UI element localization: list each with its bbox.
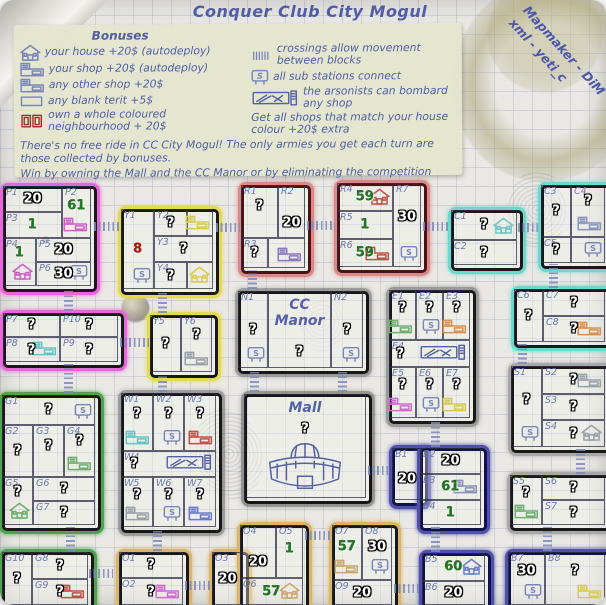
territory-B1[interactable]: B120 bbox=[392, 448, 422, 500]
territory-CC-Manor[interactable]: CC Manor? bbox=[268, 291, 331, 368]
shop-icon bbox=[577, 321, 602, 340]
crossing-icon bbox=[518, 223, 540, 232]
territory-P6[interactable]: P630S bbox=[36, 262, 91, 286]
army-count: ? bbox=[343, 322, 351, 337]
house-icon bbox=[279, 582, 300, 603]
territory-label: P8 bbox=[6, 338, 18, 349]
crossing-icon bbox=[431, 421, 440, 447]
territory-O4[interactable]: O420 bbox=[240, 525, 276, 578]
territory-label: W2 bbox=[156, 394, 171, 405]
territory-label: C6 bbox=[517, 290, 530, 301]
territory-label: C1 bbox=[454, 211, 467, 222]
army-count: ? bbox=[570, 426, 578, 441]
army-count: 59 bbox=[356, 246, 374, 261]
arsonists-icon bbox=[419, 344, 467, 364]
territory-P9[interactable]: P9? bbox=[60, 337, 118, 362]
legend-columns: your house +20$ (autodeploy)your shop +2… bbox=[20, 41, 456, 139]
map-frame: Conquer Club City Mogul Mapmaker - DiM x… bbox=[0, 0, 606, 605]
army-count: ? bbox=[133, 487, 141, 502]
substation-icon: S bbox=[251, 69, 269, 85]
army-count: ? bbox=[256, 199, 264, 214]
territory-O5[interactable]: O51 bbox=[276, 525, 303, 578]
svg-text:S: S bbox=[406, 247, 412, 257]
arsonists-icon bbox=[251, 90, 299, 106]
territory-E1[interactable]: E1? bbox=[389, 290, 416, 340]
army-count: ? bbox=[76, 434, 84, 449]
territory-W2[interactable]: W2?S bbox=[153, 393, 184, 451]
legend-text: your shop +20$ (autodeploy) bbox=[49, 62, 208, 75]
territory-label: B7 bbox=[511, 553, 524, 564]
territory-icons: S bbox=[371, 558, 389, 578]
arsonists-icon bbox=[165, 454, 213, 474]
house-icon bbox=[493, 217, 514, 238]
army-count: ? bbox=[45, 439, 53, 454]
territory-icons bbox=[279, 582, 300, 603]
svg-text:S: S bbox=[527, 427, 533, 437]
territory-R2[interactable]: R220 bbox=[278, 185, 305, 238]
shop-icon bbox=[442, 397, 467, 416]
territory-B3[interactable]: B361 bbox=[420, 474, 481, 500]
shop-icon bbox=[577, 584, 602, 603]
legend-item: any blank terit +5$ bbox=[20, 93, 251, 108]
territory-S7[interactable]: S7? bbox=[542, 500, 605, 525]
substation-icon: S bbox=[524, 583, 542, 603]
legend-text: your house +20$ (autodeploy) bbox=[45, 45, 211, 58]
territory-label: R4 bbox=[340, 184, 353, 195]
territory-label: N2 bbox=[334, 292, 347, 303]
territory-icons bbox=[334, 559, 359, 578]
legend-item: own a whole coloured neighbourhood + 20$ bbox=[20, 108, 251, 134]
legend-text: the arsonists can bombard any shop bbox=[303, 85, 456, 111]
territory-icons: S bbox=[247, 346, 265, 366]
crossing-icon bbox=[250, 370, 259, 392]
crossing-icon bbox=[185, 581, 211, 590]
territory-label: R2 bbox=[281, 186, 294, 197]
territory-O2[interactable]: O2? bbox=[119, 578, 183, 605]
shop-icon bbox=[184, 351, 209, 370]
shop-icon bbox=[188, 506, 213, 525]
territory-icons bbox=[125, 506, 150, 525]
territory-C2[interactable]: C2? bbox=[451, 240, 517, 265]
crossing-icon bbox=[158, 292, 167, 313]
territory-label: W3 bbox=[187, 394, 202, 405]
legend-item: any other shop +20$ bbox=[20, 77, 251, 93]
territory-C8[interactable]: C8? bbox=[543, 316, 605, 342]
territory-icons bbox=[581, 424, 602, 445]
territory-W5[interactable]: W5? bbox=[121, 477, 153, 527]
legend-item: your house +20$ (autodeploy) bbox=[20, 43, 251, 61]
army-count: ? bbox=[28, 342, 36, 357]
territory-O7[interactable]: O757 bbox=[332, 525, 362, 580]
territory-icons bbox=[577, 584, 602, 603]
territory-icons bbox=[577, 321, 602, 340]
army-count: 61 bbox=[441, 480, 459, 495]
territory-P4[interactable]: P41 bbox=[3, 238, 36, 286]
territory-Y2[interactable]: Y2? bbox=[154, 209, 187, 236]
territory-label: O2 bbox=[122, 579, 136, 590]
army-count: 20 bbox=[441, 454, 459, 469]
legend-text: all sub stations connect bbox=[273, 70, 401, 83]
territory-O1[interactable]: O1? bbox=[119, 552, 183, 578]
crossing-icon bbox=[158, 374, 167, 392]
territory-label: C3 bbox=[544, 186, 557, 197]
territory-R1[interactable]: R1? bbox=[241, 185, 278, 238]
territory-S5[interactable]: S5? bbox=[510, 475, 542, 525]
territory-B6[interactable]: B620 bbox=[422, 581, 485, 605]
territory-B4[interactable]: B41 bbox=[420, 500, 481, 525]
army-count: ? bbox=[453, 300, 461, 315]
army-count: ? bbox=[480, 245, 488, 260]
territory-label: B5 bbox=[425, 554, 438, 565]
crossing-icon bbox=[368, 466, 391, 475]
territory-icons: S bbox=[74, 403, 92, 423]
territory-label: Y5 bbox=[153, 316, 165, 327]
territory-C5[interactable]: C5? bbox=[541, 237, 571, 263]
territory-E3[interactable]: E3? bbox=[443, 290, 470, 340]
army-count: ? bbox=[60, 482, 68, 497]
army-count: 57 bbox=[262, 584, 280, 599]
territory-B8[interactable]: B8? bbox=[545, 552, 605, 605]
territory-E4[interactable]: E4? bbox=[389, 340, 470, 367]
army-count: 1 bbox=[28, 218, 37, 233]
territory-Y-house[interactable] bbox=[187, 262, 213, 289]
crossing-icon bbox=[153, 529, 162, 551]
crossing-icon bbox=[576, 449, 585, 474]
army-count: ? bbox=[196, 487, 204, 502]
territory-label: O9 bbox=[335, 581, 349, 592]
territory-icons bbox=[493, 217, 514, 238]
crossing-icon bbox=[338, 370, 347, 392]
territory-N1[interactable]: N1?S bbox=[238, 291, 268, 368]
territory-label: O6 bbox=[243, 579, 257, 590]
territory-label: P9 bbox=[63, 338, 75, 349]
substation-icon: S bbox=[133, 267, 151, 287]
svg-text:S: S bbox=[139, 269, 145, 279]
shop-icon bbox=[20, 78, 45, 93]
territory-label: P6 bbox=[39, 263, 51, 274]
territory-G4[interactable]: G4? bbox=[64, 425, 95, 477]
army-count: 20 bbox=[444, 586, 462, 601]
legend-text: any blank terit +5$ bbox=[48, 94, 153, 107]
crossing-icon bbox=[216, 223, 240, 232]
svg-text:S: S bbox=[253, 348, 259, 358]
svg-text:S: S bbox=[80, 405, 86, 415]
army-count: ? bbox=[570, 505, 578, 520]
territory-B5[interactable]: B560 bbox=[422, 553, 485, 581]
territory-P8[interactable]: P8? bbox=[3, 337, 60, 362]
territory-E5[interactable]: E5? bbox=[389, 367, 416, 418]
territory-icons bbox=[125, 430, 150, 449]
territory-icons bbox=[12, 263, 33, 284]
territory-icons bbox=[577, 373, 602, 392]
army-count: 20 bbox=[23, 192, 41, 207]
army-count: ? bbox=[570, 322, 578, 337]
shop-icon bbox=[155, 584, 180, 603]
territory-O9[interactable]: O920 bbox=[332, 580, 392, 605]
legend-text: own a whole coloured neighbourhood + 20$ bbox=[48, 108, 251, 134]
territory-C4[interactable]: C4? bbox=[571, 185, 605, 237]
house-icon bbox=[12, 263, 33, 284]
territory-P5[interactable]: P520 bbox=[36, 238, 91, 262]
crossing-icon bbox=[305, 531, 331, 540]
substation-icon: S bbox=[70, 264, 88, 284]
crossing-icon bbox=[518, 344, 527, 364]
army-count: ? bbox=[165, 487, 173, 502]
territory-Y-shop[interactable] bbox=[187, 209, 213, 236]
shop-icon bbox=[125, 506, 150, 525]
territory-icons: S bbox=[521, 425, 539, 445]
territory-label: C8 bbox=[546, 317, 559, 328]
shop-icon bbox=[188, 430, 213, 449]
territory-S1[interactable]: S1?S bbox=[511, 366, 542, 447]
territory-icons bbox=[184, 351, 209, 370]
legend-text: Get all shops that match your house colo… bbox=[251, 110, 456, 136]
legend-item: your shop +20$ (autodeploy) bbox=[20, 61, 251, 77]
territory-icons bbox=[388, 397, 413, 416]
territory-icons: S bbox=[524, 583, 542, 603]
army-count: 57 bbox=[338, 540, 356, 555]
territory-O3[interactable]: O320 bbox=[212, 552, 243, 605]
svg-text:S: S bbox=[169, 507, 175, 517]
rules-note-line2: Win by owning the Mall and the CC Manor … bbox=[20, 166, 456, 181]
army-count: ? bbox=[193, 328, 201, 343]
territory-W1[interactable]: W1? bbox=[121, 393, 153, 451]
territory-G2[interactable]: G2? bbox=[2, 425, 33, 477]
territory-G7[interactable]: G7? bbox=[33, 501, 95, 525]
territory-icons: S bbox=[422, 396, 440, 416]
army-count: 30 bbox=[54, 267, 72, 282]
army-count: ? bbox=[133, 406, 141, 421]
substation-icon: S bbox=[247, 346, 265, 366]
territory-label: O3 bbox=[215, 553, 229, 564]
territory-R5[interactable]: R51 bbox=[337, 211, 393, 239]
territory-N2[interactable]: N2?S bbox=[331, 291, 363, 368]
territory-label: B8 bbox=[548, 553, 561, 564]
territory-G8[interactable]: G8? bbox=[32, 552, 88, 579]
territory-E6[interactable]: E6?S bbox=[416, 367, 443, 418]
army-count: ? bbox=[196, 406, 204, 421]
territory-O6[interactable]: O657 bbox=[240, 578, 303, 605]
territory-C6[interactable]: C6? bbox=[514, 289, 543, 342]
army-count: ? bbox=[571, 563, 579, 578]
crossing-icon bbox=[64, 364, 73, 393]
svg-text:S: S bbox=[428, 320, 434, 330]
territory-label: G6 bbox=[36, 478, 49, 489]
territory-G1[interactable]: G1?S bbox=[2, 395, 95, 425]
territory-Mall[interactable]: Mall? bbox=[244, 394, 366, 498]
army-count: ? bbox=[180, 242, 188, 257]
army-count: 30 bbox=[398, 209, 416, 224]
territory-label: B3 bbox=[423, 475, 436, 486]
territory-G3[interactable]: G3? bbox=[33, 425, 64, 477]
legend-item: Get all shops that match your house colo… bbox=[251, 110, 456, 136]
territory-S4[interactable]: S4? bbox=[542, 420, 605, 447]
svg-text:S: S bbox=[348, 348, 354, 358]
territory-W4[interactable]: W4? bbox=[121, 451, 216, 477]
shop-icon bbox=[334, 559, 359, 578]
army-count: 60 bbox=[444, 560, 462, 575]
territory-E2[interactable]: E2?S bbox=[416, 290, 443, 340]
territory-P10[interactable]: P10? bbox=[60, 313, 118, 337]
territory-S2[interactable]: S2? bbox=[542, 366, 605, 394]
territory-C-sub[interactable]: S bbox=[571, 237, 605, 263]
territory-W3[interactable]: W3? bbox=[184, 393, 216, 451]
army-count: ? bbox=[552, 204, 560, 219]
territory-label: W1 bbox=[124, 394, 139, 405]
territory-label: C7 bbox=[546, 290, 559, 301]
substation-icon: S bbox=[422, 318, 440, 338]
army-count: 20 bbox=[218, 571, 236, 586]
territory-label: R7 bbox=[396, 184, 409, 195]
svg-text:S: S bbox=[377, 560, 383, 570]
territory-G6[interactable]: G6? bbox=[33, 477, 95, 501]
crossing-icon bbox=[66, 527, 75, 551]
crossing-icon bbox=[307, 221, 335, 230]
legend-item: crossings allow movement between blocks bbox=[251, 42, 456, 68]
territory-R6[interactable]: R659 bbox=[337, 239, 393, 267]
army-count: 20 bbox=[353, 585, 371, 600]
territory-icons: S bbox=[342, 346, 360, 366]
territory-Y1[interactable]: Y18S bbox=[121, 209, 154, 289]
territory-P3[interactable]: P31 bbox=[3, 212, 62, 238]
territory-G5[interactable]: G5? bbox=[2, 477, 33, 525]
army-count: ? bbox=[570, 400, 578, 415]
substation-icon: S bbox=[371, 558, 389, 578]
crossing-icon bbox=[543, 527, 552, 551]
army-count: 61 bbox=[67, 199, 85, 214]
army-count: 20 bbox=[54, 243, 72, 258]
territory-label: B4 bbox=[423, 501, 436, 512]
army-count: ? bbox=[130, 457, 138, 472]
territory-label: Y3 bbox=[157, 237, 169, 248]
rules-note: Bonuses your house +20$ (autodeploy)your… bbox=[14, 23, 463, 177]
territory-icons bbox=[188, 506, 213, 525]
shop-icon bbox=[32, 341, 57, 360]
substation-icon: S bbox=[342, 346, 360, 366]
territory-label: S4 bbox=[545, 421, 557, 432]
territory-label: B6 bbox=[425, 582, 438, 593]
territory-Y4[interactable]: Y4? bbox=[154, 262, 187, 289]
crossing-icon bbox=[94, 222, 120, 231]
crossing-icon bbox=[394, 584, 421, 593]
territory-icons: S bbox=[70, 264, 88, 284]
army-count: ? bbox=[56, 558, 64, 573]
svg-text:S: S bbox=[257, 70, 263, 80]
territory-B7[interactable]: B730S bbox=[508, 552, 545, 605]
territory-icons: S bbox=[400, 245, 418, 265]
territory-R7[interactable]: R730S bbox=[393, 183, 421, 267]
territory-P2[interactable]: P261 bbox=[62, 186, 91, 238]
territory-G10[interactable]: G10? bbox=[2, 552, 32, 605]
army-count: ? bbox=[167, 268, 175, 283]
army-count: 1 bbox=[15, 245, 24, 260]
territory-label: O1 bbox=[122, 553, 136, 564]
army-count: ? bbox=[60, 506, 68, 521]
territory-W7[interactable]: W7? bbox=[184, 477, 216, 527]
territory-label: S1 bbox=[514, 367, 526, 378]
territory-W6[interactable]: W6?S bbox=[153, 477, 184, 527]
svg-text:S: S bbox=[428, 398, 434, 408]
army-count: ? bbox=[480, 218, 488, 233]
shop-icon bbox=[577, 216, 602, 235]
crossing-icon bbox=[251, 49, 273, 62]
territory-label: P3 bbox=[6, 213, 18, 224]
territory-label: S6 bbox=[545, 476, 557, 487]
army-count: 1 bbox=[446, 505, 455, 520]
territory-label: O7 bbox=[335, 526, 349, 537]
crossing-icon bbox=[64, 289, 73, 311]
territory-B2[interactable]: B220 bbox=[420, 448, 481, 474]
territory-R-shop[interactable] bbox=[268, 238, 305, 268]
army-count: 20 bbox=[249, 554, 267, 569]
house-icon bbox=[189, 266, 210, 287]
territory-label: G10 bbox=[5, 553, 24, 564]
territory-G9[interactable]: G9? bbox=[32, 579, 88, 605]
legend-left: your house +20$ (autodeploy)your shop +2… bbox=[20, 42, 252, 139]
army-count: ? bbox=[28, 318, 36, 333]
territory-S6[interactable]: S6? bbox=[542, 475, 605, 500]
territory-icons bbox=[155, 584, 180, 603]
army-count: 1 bbox=[360, 218, 369, 233]
territory-icons: S bbox=[163, 505, 181, 525]
legend-text: crossings allow movement between blocks bbox=[277, 42, 456, 68]
neighbourhood-icon bbox=[20, 114, 44, 128]
territory-label: R5 bbox=[340, 212, 353, 223]
territory-title: CC Manor bbox=[269, 297, 330, 329]
army-count: 59 bbox=[356, 190, 374, 205]
territory-Y5[interactable]: Y5? bbox=[150, 315, 181, 372]
army-count: ? bbox=[570, 373, 578, 388]
territory-R3[interactable]: R3? bbox=[241, 238, 268, 268]
territory-label: S7 bbox=[545, 501, 557, 512]
territory-C1[interactable]: C1? bbox=[451, 210, 517, 240]
territory-icons bbox=[461, 558, 482, 579]
territory-E7[interactable]: E7? bbox=[443, 367, 470, 418]
territory-label: P2 bbox=[65, 187, 77, 198]
shop-icon bbox=[20, 62, 45, 77]
legend-text: any other shop +20$ bbox=[49, 79, 164, 92]
house-icon bbox=[581, 424, 602, 445]
substation-icon: S bbox=[584, 241, 602, 261]
territory-icons bbox=[442, 319, 467, 338]
territory-P1[interactable]: P120 bbox=[3, 186, 62, 212]
territory-P7[interactable]: P7? bbox=[3, 313, 60, 337]
substation-icon: S bbox=[74, 403, 92, 423]
territory-S3[interactable]: S3? bbox=[542, 394, 605, 420]
territory-C3[interactable]: C3? bbox=[541, 185, 571, 237]
crossing-icon bbox=[89, 569, 113, 578]
territory-label: G9 bbox=[35, 580, 48, 591]
army-count: ? bbox=[165, 406, 173, 421]
legend-item: the arsonists can bombard any shop bbox=[251, 85, 456, 111]
territory-Y6[interactable]: Y6? bbox=[181, 315, 212, 372]
territory-label: O5 bbox=[279, 526, 293, 537]
army-count: 20 bbox=[398, 472, 416, 487]
army-count: ? bbox=[525, 308, 533, 323]
army-count: ? bbox=[167, 215, 175, 230]
territory-R4[interactable]: R459 bbox=[337, 183, 393, 211]
territory-C7[interactable]: C7? bbox=[543, 289, 605, 316]
territory-icons bbox=[277, 247, 302, 266]
territory-icons bbox=[388, 319, 413, 338]
svg-text:S: S bbox=[590, 243, 596, 253]
territory-label: P1 bbox=[6, 187, 18, 198]
territory-icons: S bbox=[422, 318, 440, 338]
page-title: Conquer Club City Mogul bbox=[160, 2, 460, 21]
army-count: ? bbox=[147, 558, 155, 573]
territory-O8[interactable]: O830S bbox=[362, 525, 392, 580]
territory-Y3[interactable]: Y3? bbox=[154, 236, 213, 262]
